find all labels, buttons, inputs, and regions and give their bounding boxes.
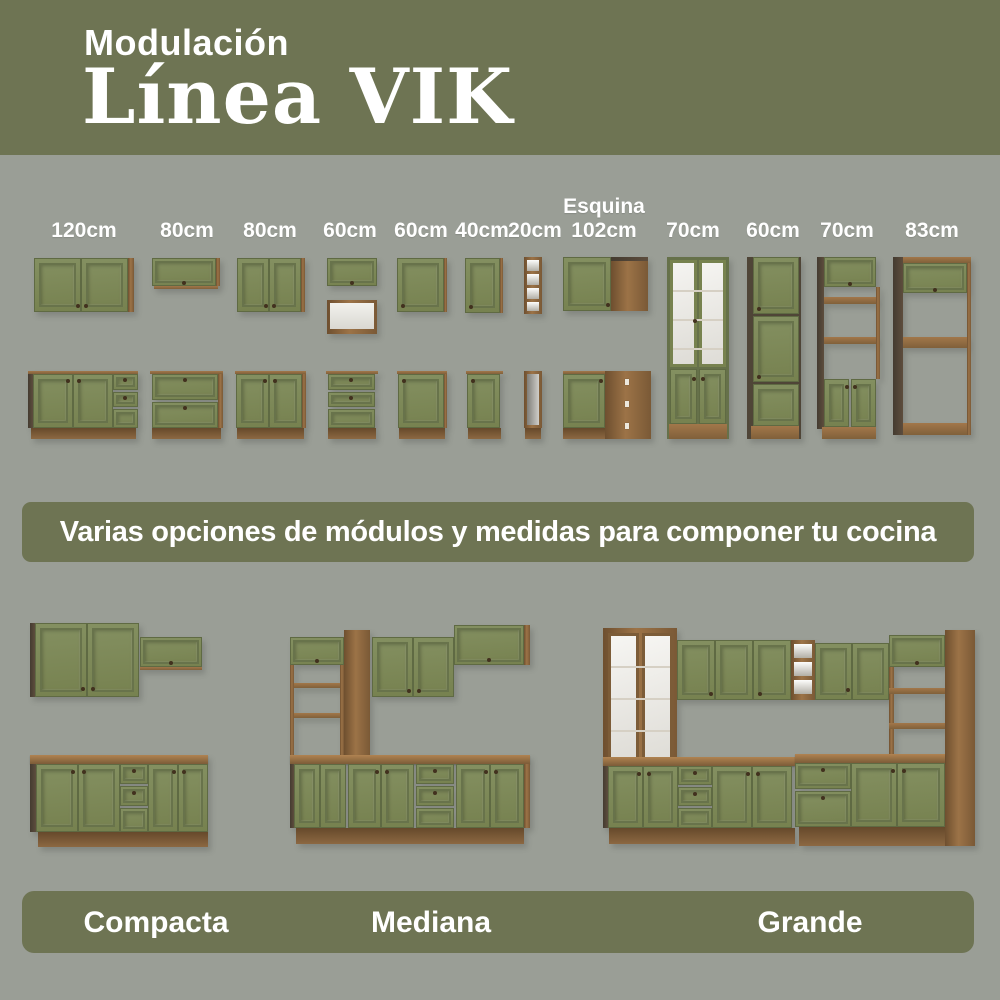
shelf — [824, 337, 880, 344]
door-knob — [350, 281, 354, 285]
drawer-front — [113, 374, 138, 390]
door-knob — [82, 770, 86, 774]
open-shelf-cell — [527, 260, 539, 271]
module-120cm-base-cabinet — [28, 371, 138, 439]
header: Modulación Línea VIK — [0, 0, 1000, 155]
drawer-knob — [349, 378, 353, 382]
module-70cm-tall-oven-tower — [817, 257, 880, 439]
kitchen-mediana-illustration — [290, 625, 530, 844]
door-knob — [81, 687, 85, 691]
door-knob — [599, 379, 603, 383]
drawer-front — [416, 808, 454, 828]
shelf — [294, 683, 340, 688]
wood-side-panel — [218, 374, 223, 428]
toe-kick — [328, 428, 376, 439]
cabinet-door — [148, 764, 178, 832]
hinge — [625, 401, 629, 407]
module-120cm-wall-cabinet — [34, 258, 134, 312]
door-knob — [91, 687, 95, 691]
door-knob — [606, 303, 610, 307]
door-knob — [701, 377, 705, 381]
module-60cm-open-shelf-box — [327, 300, 377, 334]
toe-kick — [399, 428, 445, 439]
drawer-front — [678, 808, 712, 828]
cabinet-door — [563, 257, 611, 311]
door-knob — [848, 282, 852, 286]
wood-side-panel — [524, 625, 530, 665]
drawer-front — [120, 786, 148, 806]
cabinet-door — [81, 258, 128, 312]
door-knob — [417, 689, 421, 693]
door-knob — [182, 281, 186, 285]
cabinet-door — [178, 764, 208, 832]
glass-door — [608, 633, 639, 760]
toe-kick — [468, 428, 501, 439]
cabinet-door — [35, 623, 87, 697]
drawer-front — [328, 409, 375, 428]
door-knob — [845, 385, 849, 389]
wood-side-panel — [524, 764, 530, 828]
door-knob — [891, 769, 895, 773]
door-knob — [66, 379, 70, 383]
cabinet-door — [294, 764, 320, 828]
door-knob — [273, 379, 277, 383]
cabinet-door — [851, 763, 897, 827]
toe-kick — [237, 428, 304, 439]
door-knob — [487, 658, 491, 662]
wood-side-panel — [216, 258, 220, 286]
door-knob — [471, 379, 475, 383]
shelf — [673, 348, 723, 350]
module-label-esquina: Esquina — [559, 195, 649, 219]
open-interior — [527, 374, 539, 425]
page-title: Línea VIK — [82, 52, 513, 141]
countertop — [290, 755, 530, 764]
countertop — [795, 754, 945, 763]
drawer-knob — [349, 396, 353, 400]
drawer-knob — [693, 771, 697, 775]
module-label-83cm: 83cm — [887, 219, 977, 243]
wood-top-edge — [611, 257, 648, 261]
toe-kick — [31, 428, 136, 439]
module-70cm-tall-glass-cabinet — [667, 257, 729, 439]
toe-kick — [563, 428, 605, 439]
shelf — [611, 698, 670, 700]
plinth — [669, 424, 727, 439]
door-knob — [469, 305, 473, 309]
door-knob — [933, 288, 937, 292]
drawer-knob — [433, 769, 437, 773]
door-knob — [401, 304, 405, 308]
door-knob — [758, 692, 762, 696]
toe-kick — [38, 832, 208, 847]
door-knob — [757, 307, 761, 311]
door-knob — [71, 770, 75, 774]
open-shelf-cell — [527, 302, 539, 311]
toe-kick — [799, 827, 945, 846]
door-knob — [385, 770, 389, 774]
open-interior — [330, 303, 374, 329]
size-options-bar: Compacta Mediana Grande — [22, 891, 974, 953]
drawer-front — [678, 766, 712, 785]
drawer-knob — [433, 791, 437, 795]
module-60cm-tall-pantry — [747, 257, 801, 439]
drawer-knob — [183, 378, 187, 382]
module-esquina-102cm-base — [563, 371, 651, 441]
wood-bottom-strip — [154, 286, 218, 289]
open-shelf-cell — [794, 680, 812, 694]
module-esquina-102cm-wall-cabinet — [563, 257, 648, 311]
shelf — [889, 688, 945, 694]
toe-kick — [609, 828, 795, 844]
door-knob — [756, 772, 760, 776]
open-shelf-cell — [527, 288, 539, 299]
door-knob — [846, 688, 850, 692]
module-40cm-base — [466, 371, 503, 439]
door-knob — [902, 769, 906, 773]
cabinet-door — [753, 640, 791, 700]
hinge — [625, 379, 629, 385]
corner-wood-panel — [611, 257, 648, 311]
wood-side-panel — [444, 374, 447, 428]
drawer-knob — [123, 396, 127, 400]
infographic-page: Modulación Línea VIK 120cm 80cm 80cm 60c… — [0, 0, 1000, 1000]
open-shelf-cell — [527, 274, 539, 285]
countertop — [603, 757, 795, 766]
hinge — [625, 423, 629, 429]
wood-upright — [876, 287, 880, 379]
wood-side-panel — [128, 258, 134, 312]
door-knob — [757, 375, 761, 379]
drawer-front — [416, 764, 454, 784]
module-60cm-door-base — [397, 371, 447, 439]
shelf — [673, 319, 723, 321]
module-label-102cm: 102cm — [559, 219, 649, 243]
shelf — [673, 290, 723, 292]
drawer-knob — [132, 769, 136, 773]
toe-kick — [152, 428, 221, 439]
module-83cm-fridge-surround — [893, 257, 971, 439]
door-knob — [637, 772, 641, 776]
shelf — [294, 713, 340, 718]
toe-kick — [525, 428, 541, 439]
cabinet-door — [753, 316, 799, 382]
door-knob — [272, 304, 276, 308]
door-knob — [402, 379, 406, 383]
wood-side-panel — [500, 258, 503, 313]
module-label-80cm-b: 80cm — [225, 219, 315, 243]
door-knob — [315, 659, 319, 663]
module-80cm-door-base — [235, 371, 306, 439]
shelf — [889, 723, 945, 729]
module-60cm-wall-cabinet — [397, 258, 447, 312]
kitchen-label-grande: Grande — [730, 906, 890, 940]
wood-upright — [889, 667, 894, 759]
drawer-knob — [821, 768, 825, 772]
cabinet-door — [34, 258, 81, 312]
door-knob — [375, 770, 379, 774]
module-40cm-wall-cabinet — [465, 258, 503, 313]
module-label-70cm-b: 70cm — [802, 219, 892, 243]
door-knob — [915, 661, 919, 665]
module-80cm-wall-cabinet — [237, 258, 305, 312]
cabinet-door — [753, 257, 799, 314]
cabinet-door — [372, 637, 413, 697]
module-60cm-drawer-base — [326, 371, 378, 439]
door-knob — [484, 770, 488, 774]
module-20cm-open-wall-unit — [524, 257, 542, 314]
wood-side-panel — [302, 374, 306, 428]
wood-side-edge — [967, 263, 971, 435]
wood-tower — [945, 630, 975, 846]
drawer-knob — [693, 792, 697, 796]
door-knob — [77, 379, 81, 383]
door-knob — [84, 304, 88, 308]
toe-kick — [296, 828, 524, 844]
shelf — [903, 337, 967, 348]
cabinet-door — [413, 637, 454, 697]
door-knob — [746, 772, 750, 776]
door-knob — [169, 661, 173, 665]
drawer-knob — [821, 796, 825, 800]
kitchen-grande-illustration — [603, 628, 975, 850]
plinth — [751, 426, 799, 439]
wood-side-pillar — [893, 257, 903, 435]
kitchen-label-mediana: Mediana — [351, 906, 511, 940]
open-shelf-cell — [794, 662, 812, 676]
door-knob — [182, 770, 186, 774]
shelf — [611, 730, 670, 732]
module-label-80cm-a: 80cm — [142, 219, 232, 243]
door-knob — [172, 770, 176, 774]
wood-side-panel — [444, 258, 447, 312]
door-knob — [693, 319, 697, 323]
plinth — [822, 427, 876, 439]
glass-door — [670, 260, 697, 367]
cabinet-door — [36, 764, 78, 832]
shelf — [903, 423, 967, 435]
door-knob — [264, 304, 268, 308]
drawer-knob — [183, 406, 187, 410]
module-60cm-flip-wall-cabinet — [327, 258, 377, 286]
door-knob — [494, 770, 498, 774]
shelf — [824, 297, 880, 304]
module-80cm-flip-wall-cabinet — [152, 258, 220, 289]
cabinet-door — [852, 643, 889, 700]
cabinet-door — [677, 640, 715, 700]
banner: Varias opciones de módulos y medidas par… — [22, 502, 974, 562]
banner-text: Varias opciones de módulos y medidas par… — [60, 516, 936, 549]
door-knob — [853, 385, 857, 389]
drawer-front — [416, 786, 454, 806]
drawer-front — [678, 787, 712, 806]
drawer-front — [795, 763, 851, 789]
drawer-front — [328, 374, 375, 390]
drawer-knob — [132, 791, 136, 795]
door-knob — [263, 379, 267, 383]
door-knob — [647, 772, 651, 776]
drawer-front — [120, 764, 148, 784]
door-knob — [407, 689, 411, 693]
wood-bottom-strip — [140, 667, 202, 670]
module-20cm-open-base — [524, 371, 542, 439]
cabinet-door — [715, 640, 753, 700]
countertop — [30, 755, 208, 764]
module-label-70cm-a: 70cm — [648, 219, 738, 243]
wood-column — [344, 630, 370, 757]
glass-door — [699, 260, 726, 367]
cabinet-door — [87, 623, 139, 697]
door-knob — [76, 304, 80, 308]
drawer-front — [113, 409, 138, 428]
kitchen-compacta-illustration — [30, 623, 210, 847]
drawer-knob — [123, 378, 127, 382]
door-knob — [692, 377, 696, 381]
glass-door — [642, 633, 673, 760]
wood-side-panel — [817, 257, 824, 429]
cabinet-door — [753, 384, 799, 426]
shelf — [611, 666, 670, 668]
module-label-120cm: 120cm — [39, 219, 129, 243]
cabinet-door — [78, 764, 120, 832]
open-shelf-cell — [794, 644, 812, 658]
drawer-front — [120, 808, 148, 832]
wood-upright — [290, 665, 294, 757]
module-80cm-drawer-base — [150, 371, 223, 439]
wood-side-panel — [301, 258, 305, 312]
kitchen-label-compacta: Compacta — [76, 906, 236, 940]
door-knob — [709, 692, 713, 696]
cabinet-door — [320, 764, 346, 828]
